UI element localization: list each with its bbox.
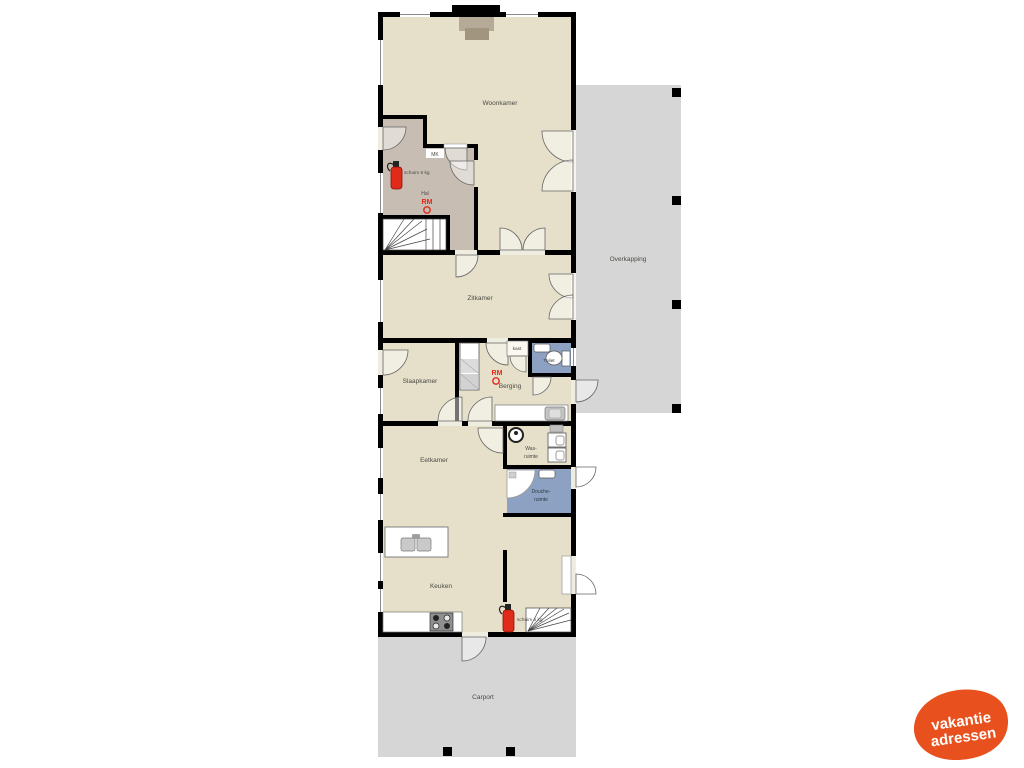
door-gap xyxy=(571,467,576,489)
carport-label: Carport xyxy=(472,694,494,701)
wall-segment xyxy=(378,215,450,219)
sink-icon xyxy=(401,538,415,551)
sink-icon xyxy=(534,344,550,352)
window xyxy=(506,12,538,17)
sink-icon xyxy=(550,425,563,432)
door-gap xyxy=(500,250,545,255)
wasruimte-label-line1: Was- xyxy=(525,446,537,452)
window xyxy=(378,280,383,322)
wall-segment xyxy=(446,215,450,254)
door-gap xyxy=(455,250,477,255)
post-icon xyxy=(443,747,452,756)
kast-label: kast xyxy=(513,346,522,352)
window xyxy=(378,448,383,478)
door-arc xyxy=(576,574,596,594)
wasruimte-label-line2: ruimte xyxy=(524,454,538,460)
wall-segment xyxy=(503,426,507,469)
wall-segment xyxy=(528,373,575,377)
eetkamer-label: Eetkamer xyxy=(420,457,449,464)
mk-label: MK xyxy=(431,152,439,158)
post-icon xyxy=(672,88,681,97)
woonkamer-label: Woonkamer xyxy=(483,100,519,107)
stove-icon xyxy=(430,613,453,631)
counter xyxy=(383,612,462,632)
window xyxy=(400,12,430,17)
wall-segment xyxy=(378,12,383,637)
wall-segment xyxy=(378,115,427,119)
door-gap xyxy=(378,127,383,150)
door-gap xyxy=(462,632,488,637)
keuken-label: Keuken xyxy=(430,583,452,590)
extinguisher-label: schuim 6 kg xyxy=(517,617,543,623)
doucheruimte-label-line1: Douche- xyxy=(532,489,551,495)
window xyxy=(378,40,383,85)
doucheruimte-label-line2: ruimte xyxy=(534,497,548,503)
door-arc xyxy=(576,467,596,487)
vakantieadressen-logo: vakantie adressen xyxy=(914,690,1008,760)
window xyxy=(378,494,383,520)
kitchen-island xyxy=(385,527,448,557)
wall-segment xyxy=(571,12,576,637)
window xyxy=(378,589,383,612)
berging-label: Berging xyxy=(499,383,522,390)
door-gap xyxy=(571,556,576,594)
window xyxy=(571,348,576,366)
overkapping-area: Overkapping xyxy=(576,85,681,413)
door-leaf xyxy=(562,556,571,594)
wall-segment xyxy=(528,341,532,377)
door-gap xyxy=(474,160,478,187)
window xyxy=(378,553,383,581)
sink-icon xyxy=(417,538,431,551)
wardrobe-icon xyxy=(460,343,479,390)
wall-segment xyxy=(378,338,576,343)
floorplan-page: Overkapping Carport xyxy=(0,0,1024,768)
extinguisher-label: schuim 6 kg xyxy=(404,170,430,176)
door-leaf xyxy=(444,144,467,148)
door-gap xyxy=(378,350,383,375)
door-gap xyxy=(571,380,576,404)
overkapping-label: Overkapping xyxy=(610,256,647,263)
wall-segment xyxy=(503,550,507,602)
wall-segment xyxy=(503,513,576,517)
window xyxy=(378,388,383,414)
post-icon xyxy=(672,404,681,413)
slaapkamer-label: Slaapkamer xyxy=(403,378,439,385)
post-icon xyxy=(672,196,681,205)
smoke-detector-label: RM xyxy=(492,370,503,377)
zitkamer-label: Zitkamer xyxy=(467,295,493,302)
wall-segment xyxy=(423,115,427,148)
overkapping-floor xyxy=(576,85,681,413)
door-gap xyxy=(487,338,508,343)
door-gap xyxy=(438,421,462,426)
door-gap xyxy=(468,421,492,426)
wall-segment xyxy=(503,465,576,469)
sink-icon xyxy=(539,470,555,478)
window xyxy=(378,173,383,213)
floorplan-svg: Overkapping Carport xyxy=(0,0,1024,768)
stairs-icon xyxy=(383,219,446,250)
smoke-detector-label: RM xyxy=(422,199,433,206)
hal-label: Hal xyxy=(421,191,429,197)
post-icon xyxy=(506,747,515,756)
post-icon xyxy=(672,300,681,309)
counter xyxy=(495,405,568,421)
toilet-label: Toilet xyxy=(543,358,555,364)
